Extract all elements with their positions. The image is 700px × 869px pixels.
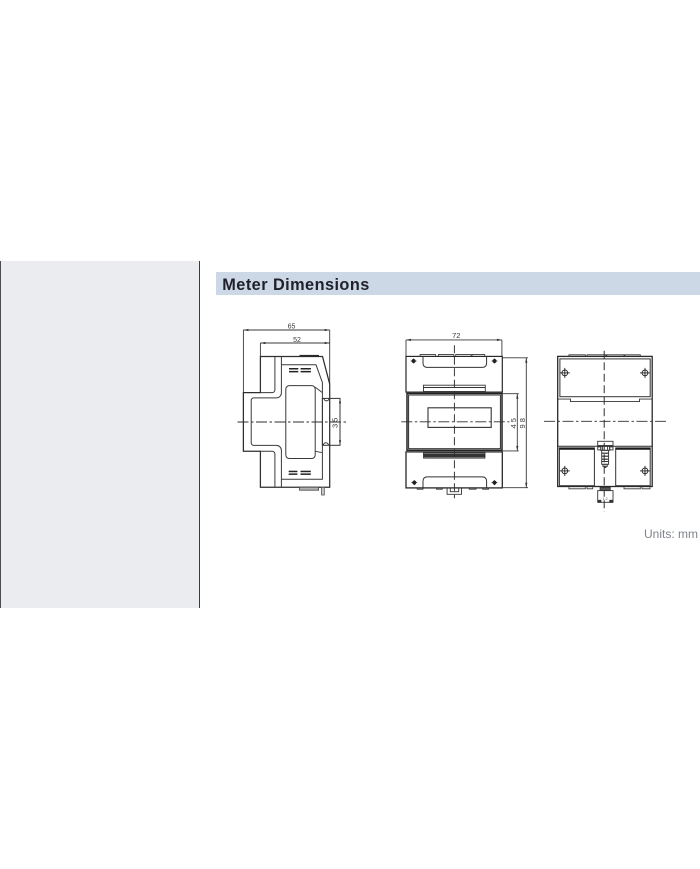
svg-text:65: 65	[288, 323, 296, 330]
svg-text:52: 52	[293, 337, 301, 344]
svg-text:1.2: 1.2	[602, 496, 608, 501]
svg-text:45: 45	[509, 416, 518, 428]
svg-text:98: 98	[518, 416, 527, 428]
svg-text:72: 72	[452, 331, 460, 340]
